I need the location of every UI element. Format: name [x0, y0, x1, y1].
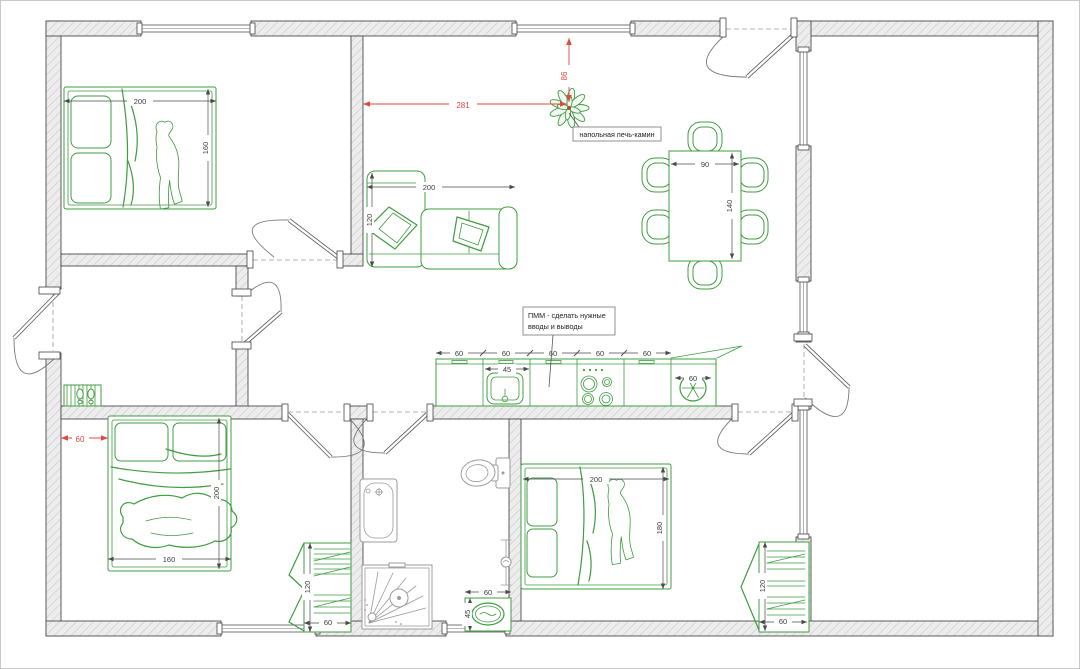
dim-sofa-depth: 120: [365, 214, 374, 227]
dim-kitchen-unit-4: 60: [596, 349, 604, 358]
dim-fridge-width: 60: [689, 374, 697, 383]
dim-bath-sink-depth: 45: [463, 610, 472, 618]
dim-kitchen-unit-1: 60: [455, 349, 463, 358]
kitchen-counter: 60 60 60 60 60 60 45: [436, 346, 742, 406]
dim-wardrobe3-height: 120: [758, 580, 767, 593]
shoe-rack: [64, 385, 101, 406]
dim-kitchen-unit-5: 60: [643, 349, 651, 358]
bed-2: 160 200: [108, 416, 237, 571]
stove-plant-symbol: напольная печь-камин: [549, 88, 661, 141]
door-bedroom1: [247, 220, 343, 268]
dim-table-width: 90: [701, 160, 709, 169]
dim-bed3-depth: 180: [655, 522, 664, 535]
dim-bed1-depth: 160: [201, 142, 210, 155]
dim-bath-sink-width: 60: [484, 588, 492, 597]
dim-bed3-width: 200: [590, 475, 603, 484]
dim-wardrobe2-width: 60: [324, 618, 332, 627]
dim-bed1-width: 200: [134, 97, 147, 106]
door-annex: [794, 334, 849, 417]
bathtub: [360, 479, 397, 542]
kitchen-sink: [487, 373, 523, 404]
bed-3: 200 180: [521, 464, 671, 589]
door-hallway: [232, 282, 281, 349]
bed-1: 200 160: [64, 87, 216, 209]
shower: [362, 563, 432, 629]
windows: [137, 23, 809, 634]
dim-kitchen-sink-width: 45: [503, 365, 511, 374]
dishwasher-note-line1: ПММ - сделать нужные: [528, 311, 606, 320]
bathroom-sink: 60 45: [462, 587, 511, 631]
dim-kitchen-unit-3: 60: [549, 349, 557, 358]
dim-bed2-width: 160: [163, 555, 176, 564]
door-living-room-top: [706, 18, 797, 77]
dim-kitchen-unit-2: 60: [502, 349, 510, 358]
red-dim-60: 60: [76, 435, 85, 444]
dining-table: 90 140: [642, 122, 768, 289]
dim-bed2-length: 200: [212, 487, 221, 500]
corner-sofa: 200 120: [364, 171, 517, 269]
dim-table-length: 140: [725, 200, 734, 213]
floor-plan-page: 200 160 200 120 90 140: [0, 0, 1080, 669]
floor-plan-canvas: 200 160 200 120 90 140: [1, 1, 1080, 669]
red-dim-281: 281: [456, 101, 470, 110]
dishwasher-note-line2: вводы и выводы: [528, 322, 583, 331]
toilet: [459, 458, 510, 488]
stove-label: напольная печь-камин: [579, 130, 654, 139]
wardrobe-bedroom3: 120 60: [741, 542, 809, 632]
dim-sofa-width: 200: [423, 183, 436, 192]
dim-wardrobe3-width: 60: [779, 617, 787, 626]
red-dim-86: 86: [560, 71, 569, 80]
wardrobe-bedroom2: 120 60: [289, 543, 351, 632]
dim-wardrobe2-height: 120: [303, 581, 312, 594]
